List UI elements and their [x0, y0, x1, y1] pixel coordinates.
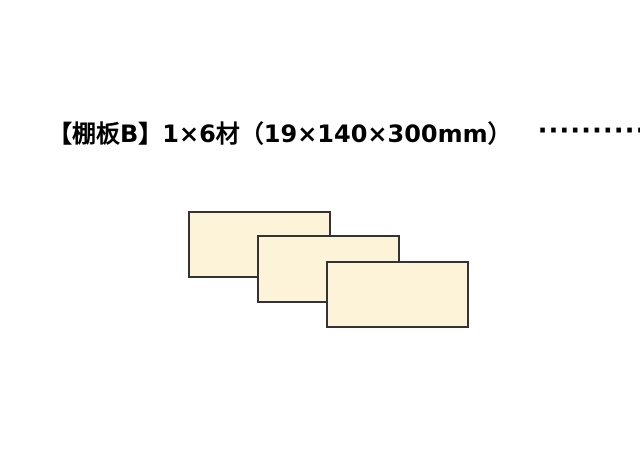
board-stack [0, 0, 640, 450]
board-3 [326, 261, 469, 328]
parts-diagram-canvas: 【棚板B】1×6材（19×140×300mm） ············ 3枚 [0, 0, 640, 450]
